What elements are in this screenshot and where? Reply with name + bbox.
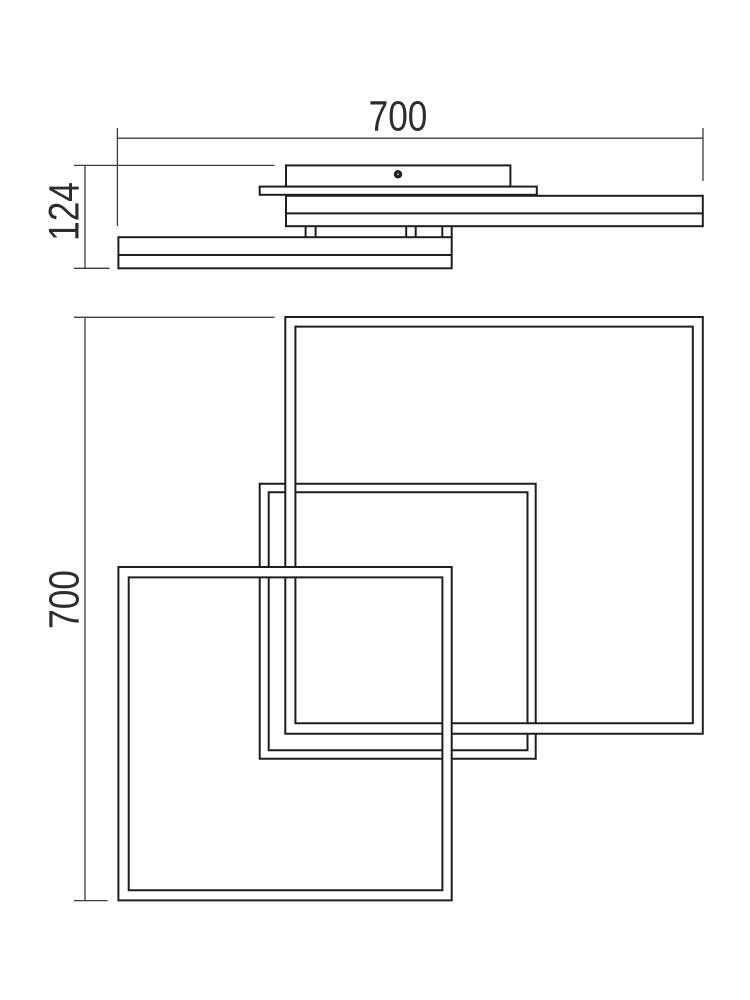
svg-text:700: 700 bbox=[40, 570, 88, 629]
svg-text:700: 700 bbox=[369, 92, 428, 140]
svg-text:124: 124 bbox=[40, 182, 88, 241]
